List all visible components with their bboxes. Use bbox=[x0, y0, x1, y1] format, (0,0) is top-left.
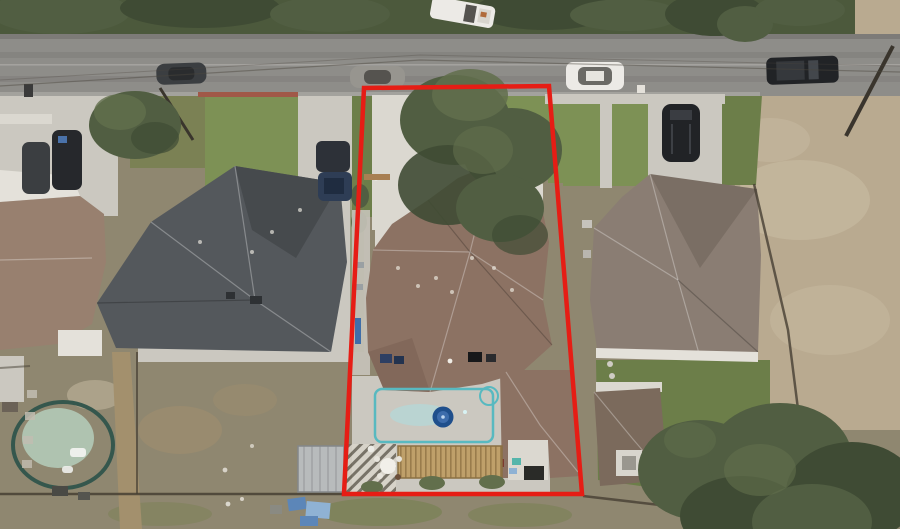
car-windows bbox=[364, 70, 391, 84]
debris bbox=[250, 444, 254, 448]
bush bbox=[361, 481, 383, 493]
blue-bin bbox=[58, 136, 67, 143]
ac-unit bbox=[583, 250, 591, 258]
roof-vent bbox=[492, 266, 496, 270]
roof-vent bbox=[450, 290, 454, 294]
side-structure-dark bbox=[2, 402, 18, 412]
roof-vent bbox=[434, 276, 438, 280]
roof-vent bbox=[250, 250, 254, 254]
ac-unit bbox=[356, 284, 363, 290]
car-windows bbox=[324, 178, 344, 194]
dark-car bbox=[22, 142, 50, 194]
sidewalk-segment bbox=[0, 114, 52, 124]
roof-vent bbox=[470, 256, 474, 260]
dirt-patch bbox=[138, 406, 222, 454]
front-tree bbox=[89, 91, 181, 159]
tree-canopy bbox=[432, 69, 508, 121]
stone bbox=[23, 436, 33, 444]
side-structure bbox=[0, 356, 24, 402]
pergola bbox=[398, 446, 502, 478]
patio-chair bbox=[377, 473, 383, 479]
roof-vent-dark bbox=[250, 296, 262, 304]
tree-canopy bbox=[492, 215, 548, 255]
roof-vent bbox=[298, 208, 302, 212]
patio-chair bbox=[368, 446, 375, 453]
debris bbox=[226, 502, 231, 507]
patio-chair bbox=[396, 456, 402, 462]
stone bbox=[27, 390, 37, 398]
roof-panel bbox=[586, 71, 604, 81]
lane-line bbox=[0, 64, 900, 66]
right-front-lawn-1 bbox=[563, 98, 602, 186]
metal-shed bbox=[298, 446, 344, 492]
aerial-photo-canvas bbox=[0, 0, 900, 529]
tire-streak bbox=[0, 52, 900, 58]
dirt-corner bbox=[855, 0, 900, 36]
bush bbox=[479, 475, 505, 489]
dirt-patch bbox=[770, 285, 890, 355]
white-suv bbox=[566, 62, 624, 90]
debris bbox=[223, 468, 228, 473]
patio-chair bbox=[374, 456, 380, 462]
debris bbox=[240, 497, 244, 501]
patio-chair bbox=[395, 474, 401, 480]
stone bbox=[25, 412, 35, 420]
pool-mosaic-dot bbox=[441, 415, 445, 419]
tree-canopy bbox=[94, 94, 146, 130]
ac-unit bbox=[582, 220, 592, 228]
trash-bin bbox=[24, 84, 33, 97]
mailbox bbox=[637, 85, 645, 93]
scrub-patch bbox=[318, 498, 442, 526]
roof-vent bbox=[416, 284, 420, 288]
right-front-lawn-2 bbox=[612, 100, 650, 186]
equipment bbox=[468, 352, 482, 362]
dirt-patch bbox=[213, 384, 277, 416]
pool-equipment bbox=[78, 492, 90, 500]
windshield bbox=[670, 110, 692, 120]
tarp bbox=[287, 497, 306, 511]
pool-float bbox=[62, 466, 73, 473]
black-suv-driveway bbox=[662, 104, 700, 162]
pool-equipment bbox=[52, 486, 68, 496]
wood-fence bbox=[364, 174, 390, 180]
tree-canopy bbox=[453, 126, 513, 174]
dark-mat bbox=[524, 466, 544, 480]
water-sparkle bbox=[463, 410, 467, 414]
far-left-house-wall bbox=[58, 330, 102, 356]
verge-bush bbox=[570, 0, 680, 31]
stepping-stone bbox=[607, 361, 613, 367]
roof-vent-dark bbox=[226, 292, 235, 299]
garage-wing bbox=[492, 370, 581, 480]
left-neighbor-cars bbox=[316, 141, 352, 201]
bin bbox=[394, 356, 404, 364]
bush bbox=[419, 476, 445, 490]
pool-float bbox=[70, 448, 86, 457]
junk bbox=[270, 505, 282, 514]
roof-vent bbox=[396, 266, 400, 270]
white-speck bbox=[448, 359, 453, 364]
bin bbox=[380, 354, 392, 363]
pool-toy bbox=[509, 468, 517, 474]
bed-cargo bbox=[480, 12, 487, 18]
roof-vent bbox=[510, 288, 514, 292]
tarp bbox=[300, 516, 318, 526]
stepping-stone bbox=[609, 373, 615, 379]
dark-car bbox=[316, 141, 350, 172]
patio-table bbox=[380, 458, 396, 474]
blue-ladder bbox=[355, 318, 361, 344]
tree-canopy bbox=[724, 444, 796, 496]
equipment bbox=[486, 354, 496, 362]
tree-canopy bbox=[664, 422, 716, 458]
cooler bbox=[512, 458, 521, 465]
roof-vent bbox=[198, 240, 202, 244]
red-brick-curb bbox=[198, 92, 298, 97]
skylight bbox=[622, 456, 636, 470]
roof-vent bbox=[270, 230, 274, 234]
tree-canopy bbox=[131, 122, 179, 154]
stone bbox=[22, 460, 32, 468]
front-walk bbox=[600, 96, 612, 188]
gray-sedan bbox=[350, 66, 405, 88]
scrub-patch bbox=[468, 503, 572, 527]
aerial-photo bbox=[0, 0, 900, 529]
